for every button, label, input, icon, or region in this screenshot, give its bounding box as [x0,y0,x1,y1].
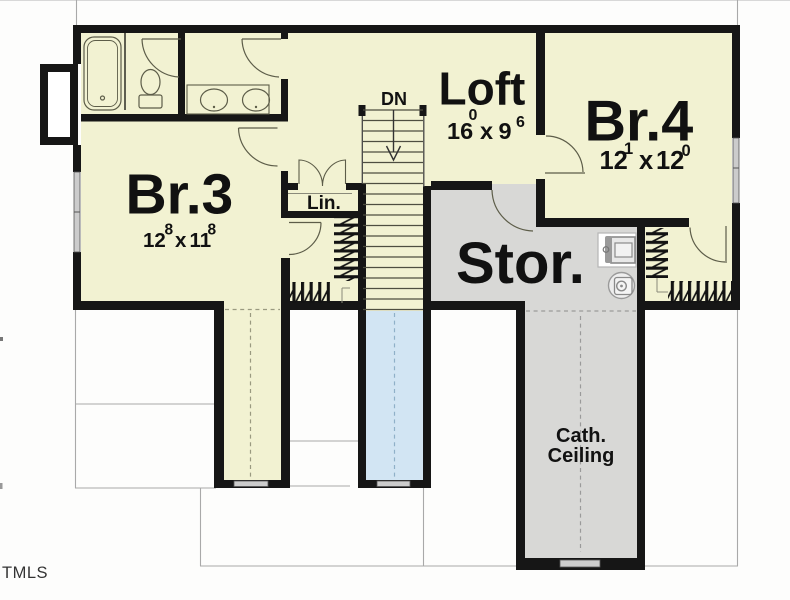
svg-text:6: 6 [516,114,525,131]
svg-text:Cath.: Cath. [556,425,606,447]
svg-text:Ceiling: Ceiling [548,445,615,467]
svg-text:8: 8 [165,222,174,239]
svg-text:1: 1 [624,140,633,158]
svg-text:TMLS: TMLS [2,564,48,582]
svg-text:Br.3: Br.3 [126,163,234,227]
svg-text:8: 8 [208,222,217,239]
svg-text:x: x [480,118,493,144]
svg-text:Stor.: Stor. [456,231,585,296]
svg-text:9: 9 [499,118,512,144]
svg-text:DN: DN [381,89,407,109]
svg-text:Loft: Loft [439,63,526,115]
svg-text:Br.4: Br.4 [585,90,694,154]
svg-text:0: 0 [469,107,478,124]
svg-text:12: 12 [656,147,684,175]
svg-text:0: 0 [682,142,691,160]
svg-text:12: 12 [143,229,166,252]
svg-text:x: x [175,229,187,252]
svg-text:Lin.: Lin. [307,193,341,214]
svg-text:x: x [639,147,653,175]
